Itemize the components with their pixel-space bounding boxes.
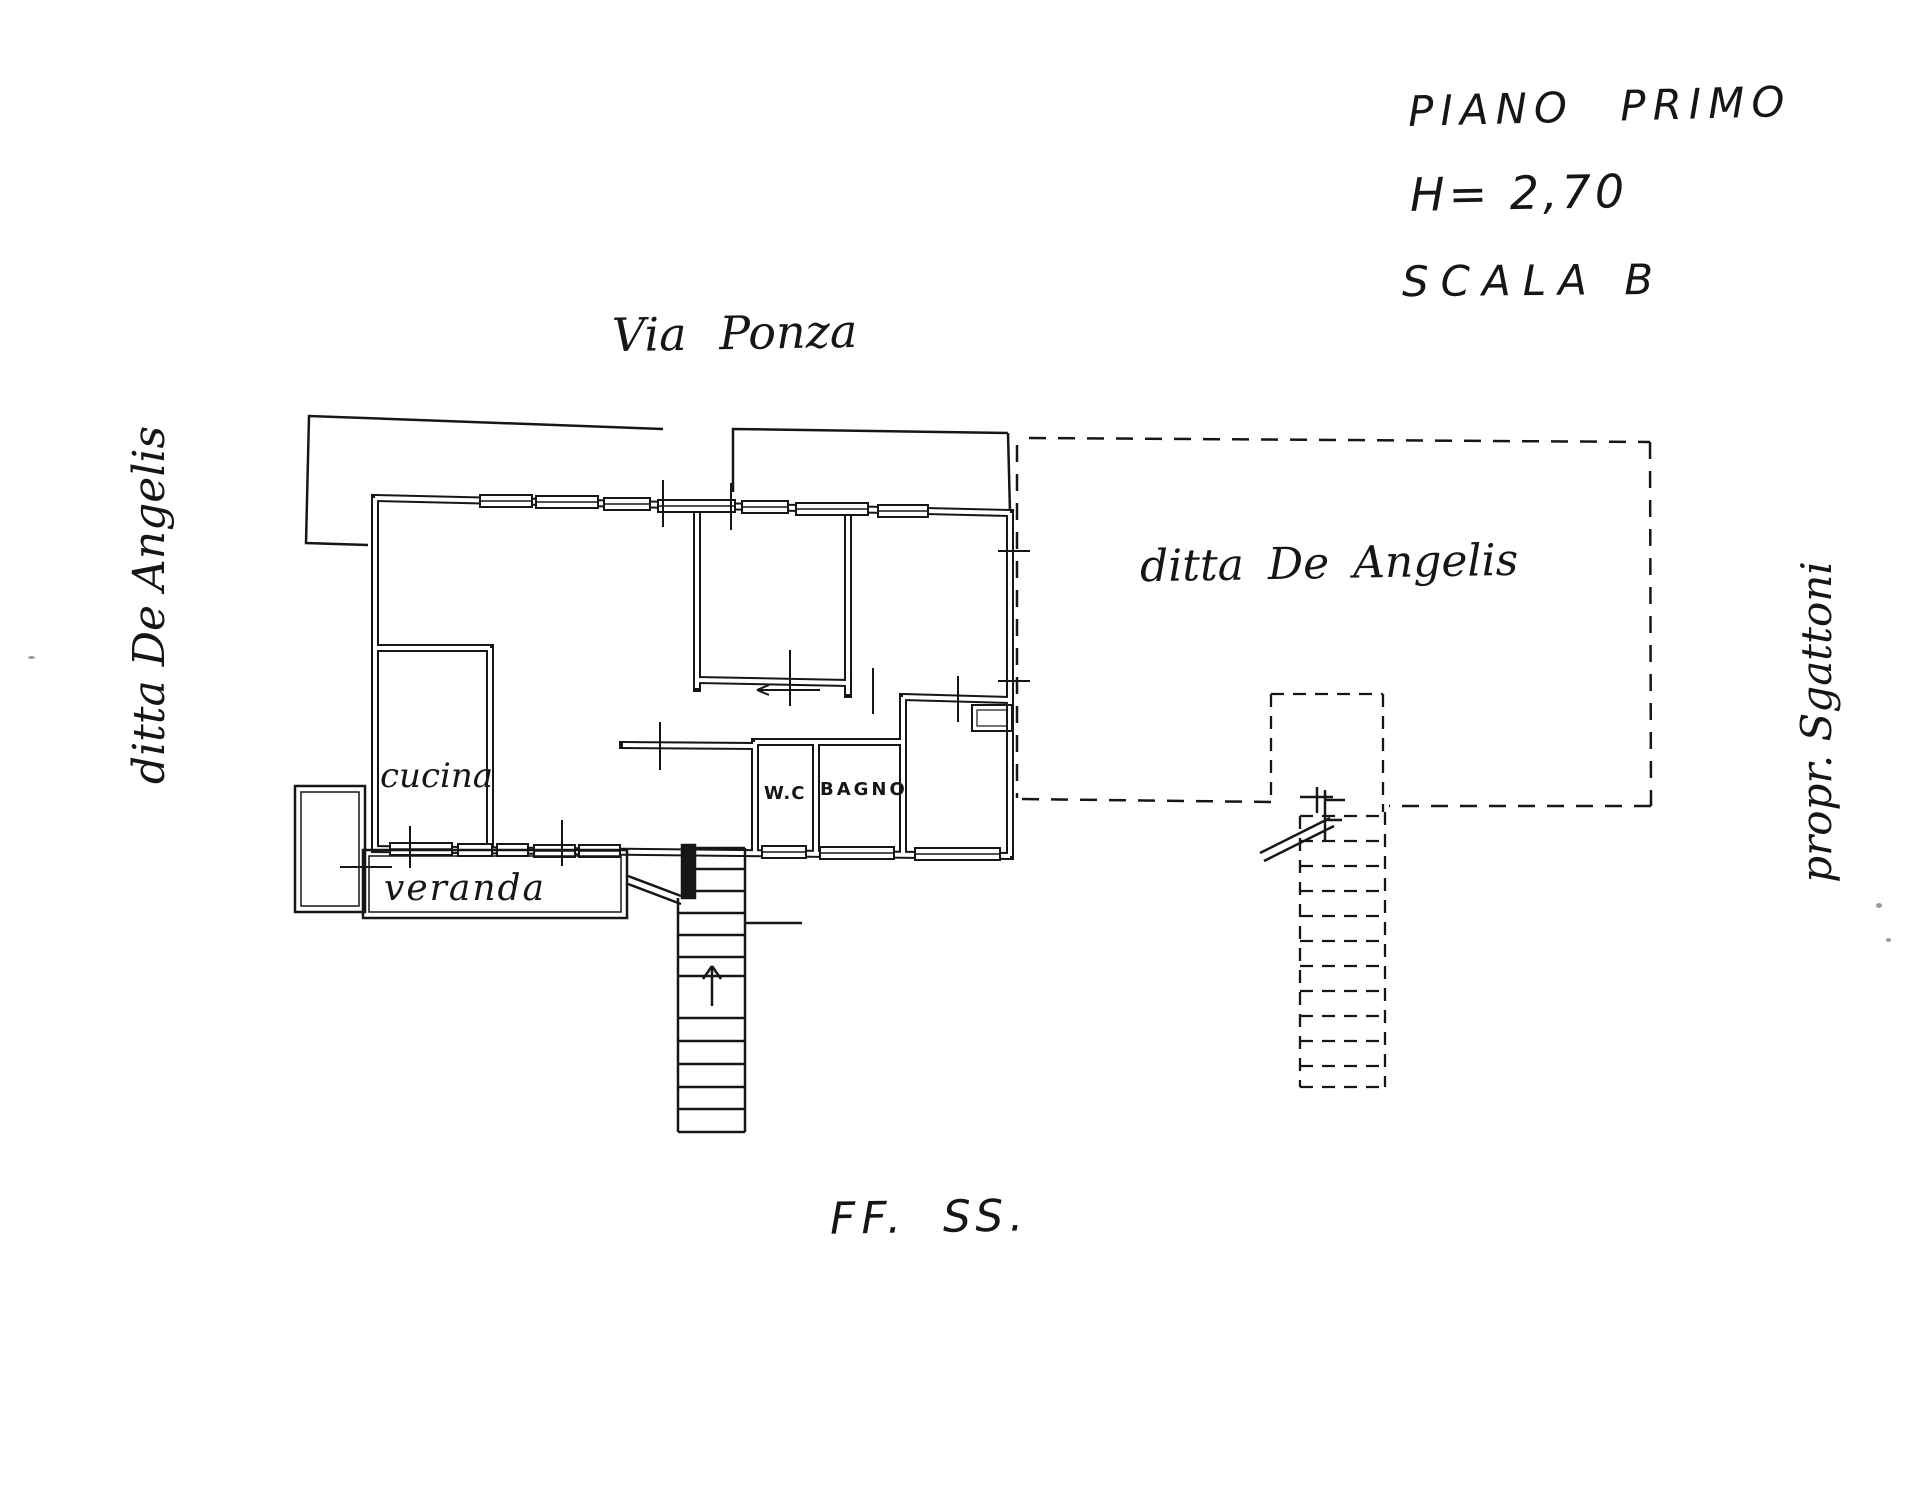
main-staircase [628,845,802,1132]
area-owner-label: ditta De Angelis [1140,535,1519,593]
room-label-kitchen: cucina [380,756,493,796]
left-neighbor-label: ditta De Angelis [124,385,176,825]
title-height: H= 2,70 [1410,164,1629,222]
stair-newel-post [682,845,695,898]
property-boundary-dashed [1017,438,1651,806]
terrace-top-left [306,416,663,545]
stair-direction-arrow [703,966,721,1006]
terrace-bottom-left [295,786,365,912]
railway-label: FF. SS. [830,1190,1030,1244]
dashed-staircase-scala-b [1260,694,1385,1087]
scan-speck [1876,903,1882,908]
scanned-floor-plan-page: PIANO PRIMO H= 2,70 SCALA B Via Ponza di… [0,0,1920,1498]
room-label-wc: W.C [764,783,805,804]
street-label-via-ponza: Via Ponza [612,304,858,362]
apartment-walls-casing [375,498,1010,856]
room-label-bathroom: BAGNO [820,779,908,800]
title-floor: PIANO PRIMO [1407,77,1792,136]
room-label-veranda: veranda [384,868,546,909]
floor-plan-drawing [0,0,1920,1498]
stair-landing-marks [1260,787,1345,861]
scan-speck [1886,938,1891,942]
apartment-walls-core [375,498,1010,856]
stair-railing-diagonal [628,876,681,904]
scan-speck [28,656,35,659]
right-owner-label: propr. Sgattoni [1792,502,1844,942]
title-stair: SCALA B [1402,255,1665,306]
door-ticks [340,480,1030,868]
